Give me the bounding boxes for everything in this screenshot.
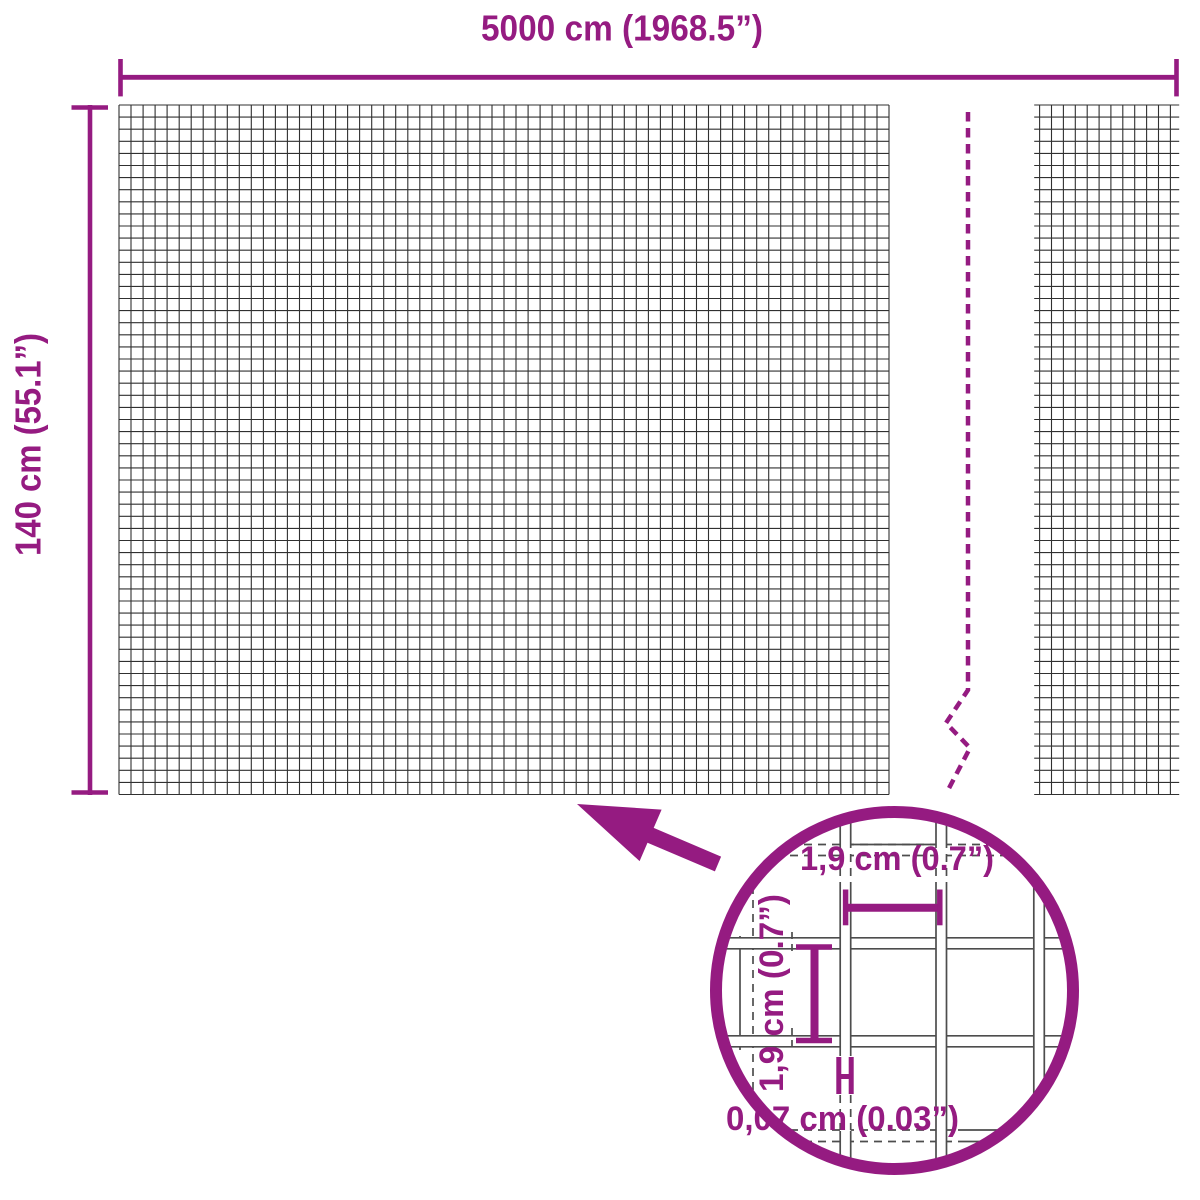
svg-text:1,9 cm (0.7”): 1,9 cm (0.7”) — [800, 840, 994, 878]
svg-text:140 cm (55.1”): 140 cm (55.1”) — [8, 333, 49, 556]
svg-text:5000 cm (1968.5”): 5000 cm (1968.5”) — [481, 8, 763, 49]
svg-text:1,9 cm (0.7”): 1,9 cm (0.7”) — [753, 894, 791, 1092]
svg-text:0,07 cm (0.03”): 0,07 cm (0.03”) — [726, 1100, 959, 1138]
